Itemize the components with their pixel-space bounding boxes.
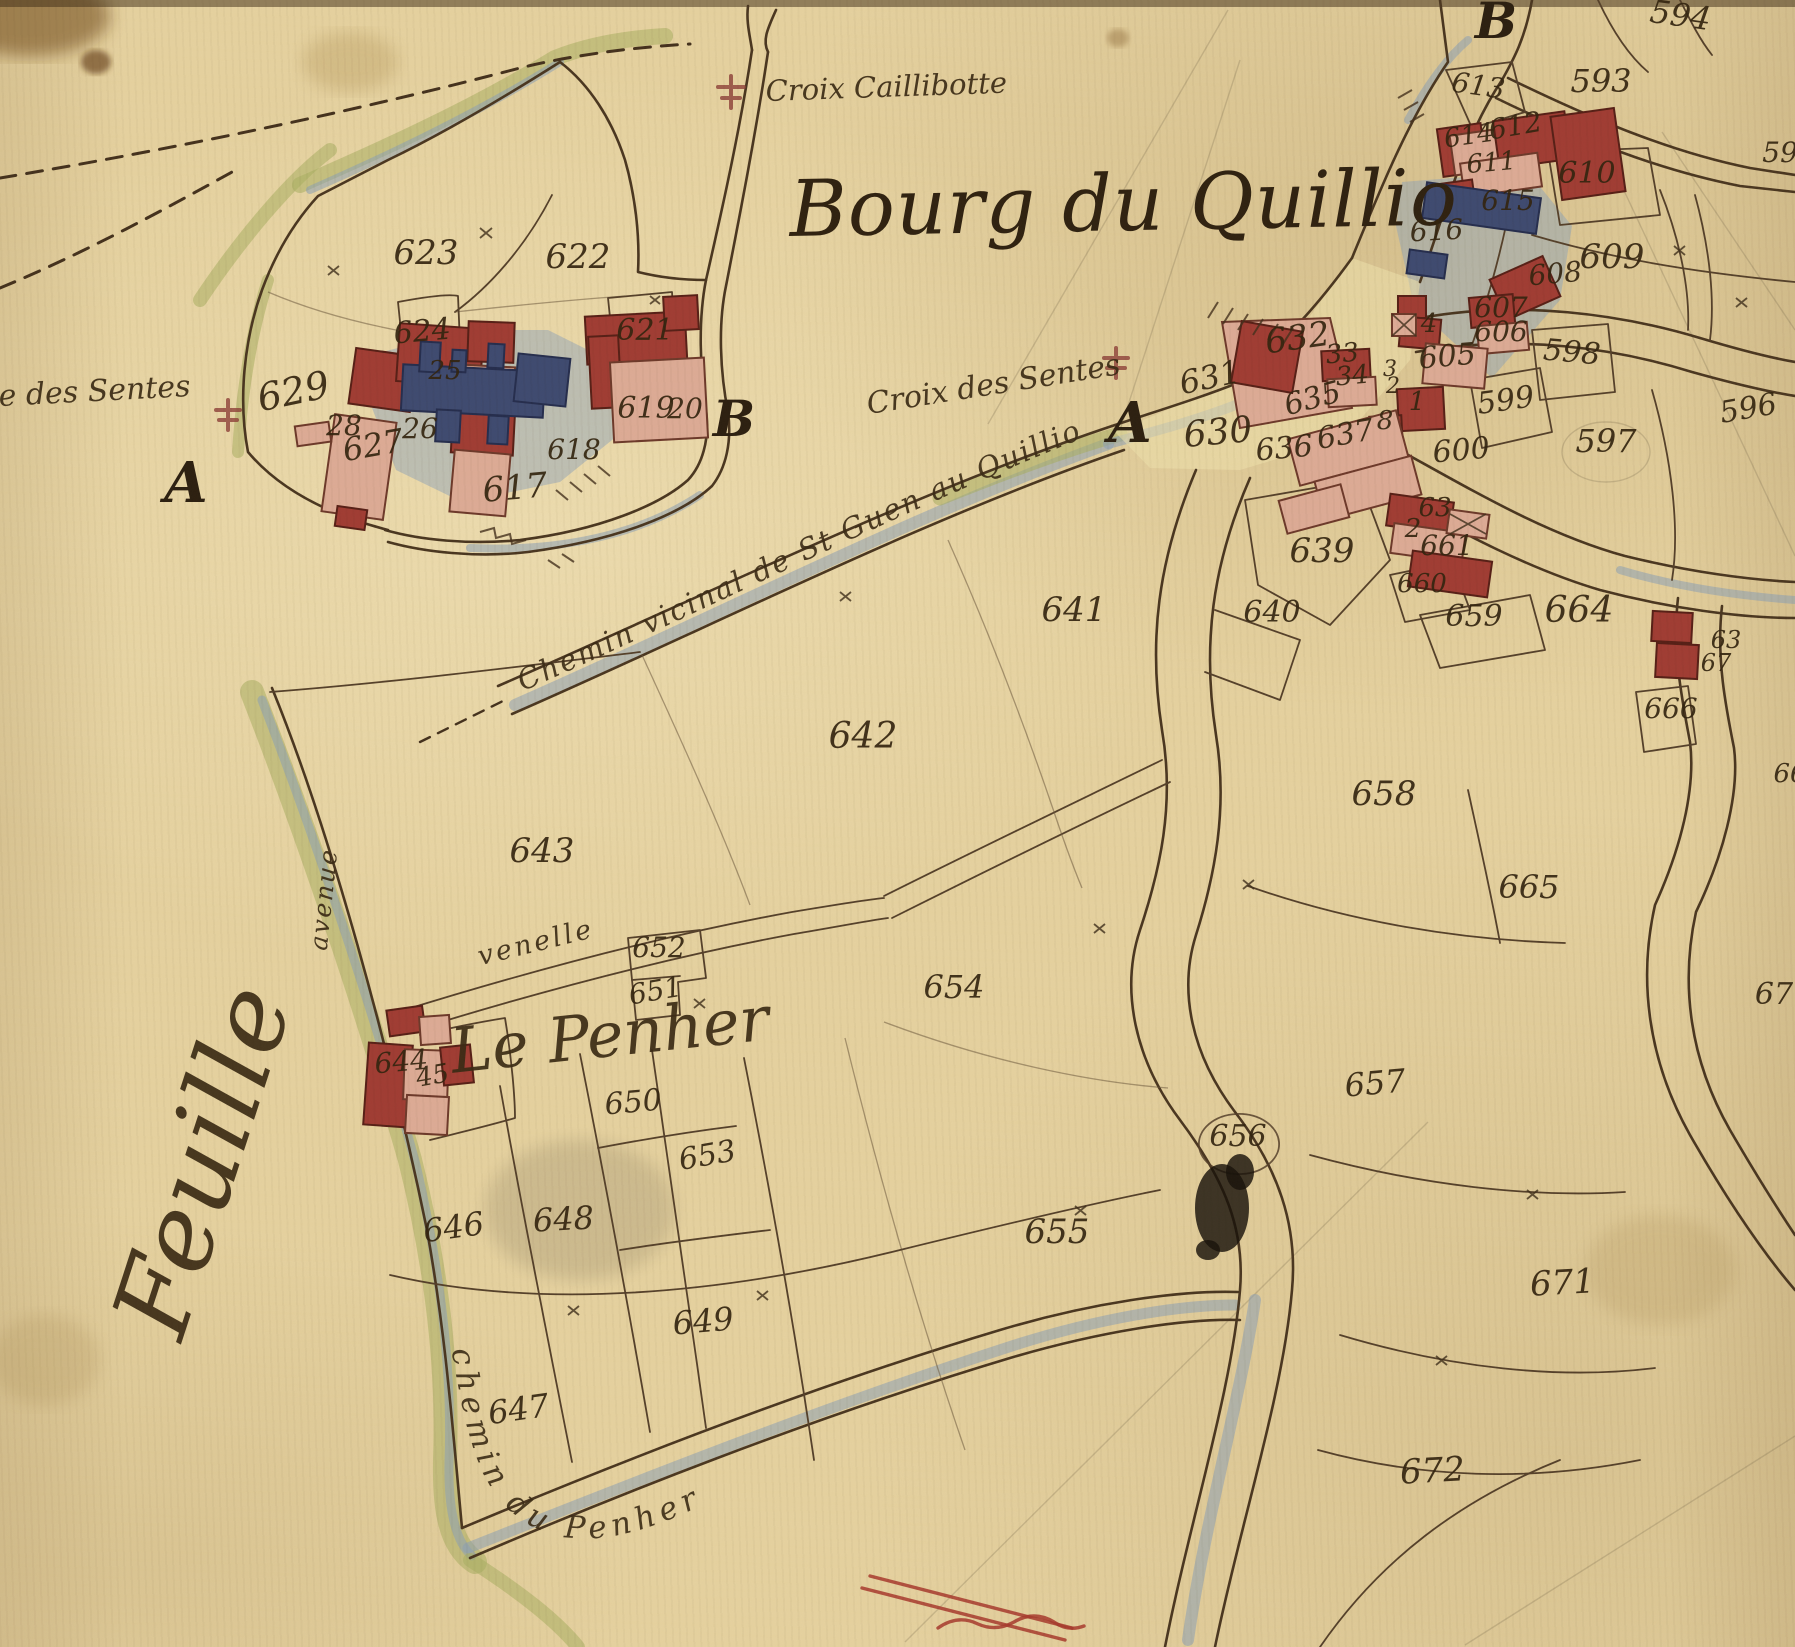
cadastral-map-sheet: Bourg du Quillio Croix Caillibotte Croix… xyxy=(0,0,1795,1647)
cadastral-map: Bourg du Quillio Croix Caillibotte Croix… xyxy=(0,0,1795,1647)
paper-grain-overlay xyxy=(0,0,1795,1647)
